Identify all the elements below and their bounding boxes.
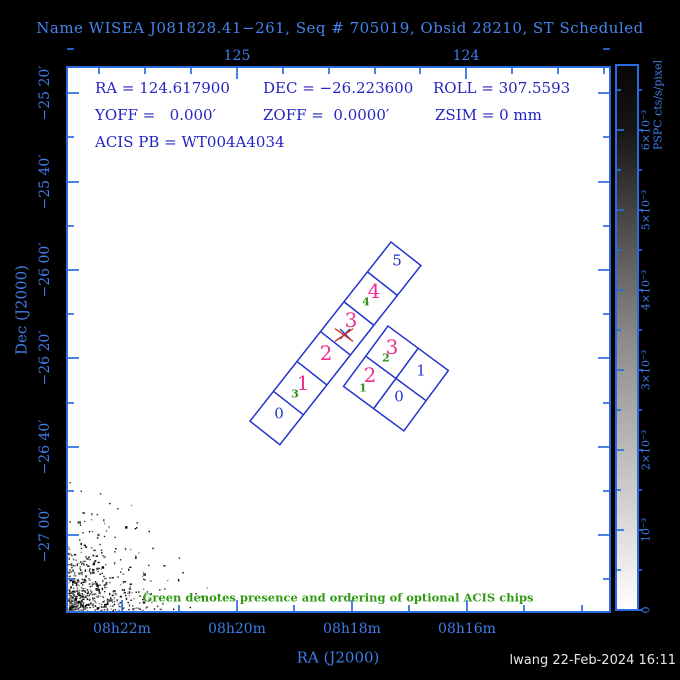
noise-pixel bbox=[109, 593, 110, 595]
noise-pixel bbox=[74, 601, 75, 602]
noise-pixel bbox=[68, 553, 69, 555]
noise-pixel bbox=[69, 598, 70, 599]
noise-pixel bbox=[72, 594, 73, 595]
noise-pixel bbox=[73, 599, 74, 600]
noise-pixel bbox=[101, 568, 102, 569]
noise-pixel bbox=[69, 597, 71, 598]
noise-pixel bbox=[80, 566, 81, 567]
noise-pixel bbox=[109, 526, 110, 528]
noise-pixel bbox=[78, 563, 79, 564]
noise-pixel bbox=[147, 591, 148, 592]
noise-pixel bbox=[92, 582, 93, 583]
noise-pixel bbox=[93, 607, 94, 608]
noise-pixel bbox=[111, 608, 112, 609]
colorbar bbox=[616, 65, 638, 610]
noise-pixel bbox=[75, 604, 76, 605]
noise-pixel bbox=[96, 568, 98, 570]
noise-pixel bbox=[110, 606, 111, 607]
noise-pixel bbox=[148, 565, 149, 566]
noise-pixel bbox=[83, 582, 84, 583]
noise-pixel bbox=[138, 591, 139, 592]
noise-pixel bbox=[123, 607, 124, 608]
noise-pixel bbox=[69, 557, 70, 558]
noise-pixel bbox=[84, 590, 85, 591]
noise-pixel bbox=[128, 609, 129, 610]
noise-pixel bbox=[77, 587, 78, 588]
noise-pixel bbox=[110, 597, 111, 599]
noise-pixel bbox=[82, 563, 84, 564]
noise-pixel bbox=[82, 596, 84, 597]
noise-pixel bbox=[201, 596, 202, 597]
noise-pixel bbox=[91, 591, 92, 592]
noise-pixel bbox=[173, 609, 174, 610]
noise-pixel bbox=[108, 599, 110, 600]
noise-pixel bbox=[102, 588, 103, 590]
noise-pixel bbox=[98, 562, 100, 563]
noise-pixel bbox=[71, 564, 72, 566]
noise-pixel bbox=[80, 607, 81, 608]
noise-pixel bbox=[83, 602, 84, 604]
noise-pixel bbox=[73, 610, 74, 611]
noise-pixel bbox=[107, 603, 108, 605]
noise-pixel bbox=[74, 554, 76, 555]
noise-pixel bbox=[159, 589, 160, 590]
noise-pixel bbox=[91, 585, 92, 586]
noise-pixel bbox=[117, 599, 118, 600]
noise-pixel bbox=[69, 593, 70, 594]
noise-pixel bbox=[74, 582, 75, 583]
noise-pixel bbox=[84, 545, 86, 546]
noise-pixel bbox=[115, 593, 117, 595]
noise-pixel bbox=[72, 592, 74, 593]
noise-pixel bbox=[135, 608, 136, 609]
noise-pixel bbox=[82, 584, 83, 585]
noise-pixel bbox=[98, 595, 99, 596]
noise-pixel bbox=[94, 593, 96, 594]
noise-pixel bbox=[110, 600, 111, 601]
noise-pixel bbox=[137, 522, 138, 523]
noise-pixel bbox=[79, 590, 80, 591]
noise-pixel bbox=[70, 572, 72, 573]
noise-pixel bbox=[106, 530, 107, 531]
noise-pixel bbox=[94, 583, 95, 584]
noise-pixel bbox=[106, 587, 107, 588]
noise-pixel bbox=[76, 591, 77, 592]
noise-pixel bbox=[77, 605, 78, 606]
noise-pixel bbox=[73, 588, 74, 589]
noise-pixel bbox=[84, 521, 85, 522]
noise-pixel bbox=[80, 603, 81, 605]
noise-pixel bbox=[154, 608, 155, 609]
noise-pixel bbox=[114, 562, 115, 564]
noise-pixel bbox=[115, 548, 116, 549]
noise-pixel bbox=[81, 543, 82, 545]
noise-pixel bbox=[85, 575, 86, 577]
noise-pixel bbox=[85, 591, 86, 592]
noise-pixel bbox=[74, 575, 76, 576]
noise-pixel bbox=[89, 568, 90, 569]
noise-pixel bbox=[102, 566, 104, 568]
noise-pixel bbox=[79, 594, 80, 596]
noise-pixel bbox=[69, 558, 70, 559]
noise-pixel bbox=[129, 588, 131, 589]
noise-pixel bbox=[91, 513, 92, 515]
noise-pixel bbox=[79, 568, 80, 569]
noise-pixel bbox=[82, 579, 83, 580]
noise-pixel bbox=[73, 604, 74, 605]
noise-pixel bbox=[103, 519, 104, 521]
noise-pixel bbox=[112, 605, 113, 606]
noise-pixel bbox=[114, 551, 115, 552]
noise-pixel bbox=[77, 564, 78, 566]
noise-pixel bbox=[160, 609, 162, 610]
noise-pixel bbox=[79, 581, 80, 582]
noise-pixel bbox=[75, 598, 76, 599]
noise-pixel bbox=[133, 598, 134, 599]
noise-pixel bbox=[71, 600, 72, 602]
noise-pixel bbox=[103, 556, 105, 558]
noise-pixel bbox=[101, 610, 102, 611]
noise-pixel bbox=[124, 581, 126, 582]
noise-pixel bbox=[94, 598, 95, 599]
noise-pixel bbox=[114, 604, 115, 605]
noise-pixel bbox=[98, 568, 99, 569]
noise-pixel bbox=[85, 546, 87, 547]
noise-pixel bbox=[104, 578, 106, 579]
noise-pixel bbox=[114, 601, 115, 602]
noise-pixel bbox=[88, 557, 89, 558]
noise-pixel bbox=[87, 599, 88, 600]
noise-pixel bbox=[102, 580, 103, 582]
noise-pixel bbox=[84, 607, 86, 608]
noise-pixel bbox=[80, 570, 81, 571]
noise-pixel bbox=[149, 531, 150, 532]
noise-pixel bbox=[87, 604, 89, 605]
noise-pixel bbox=[72, 583, 73, 585]
noise-pixel bbox=[73, 559, 74, 560]
noise-pixel bbox=[145, 608, 146, 609]
noise-pixel bbox=[144, 573, 146, 575]
noise-pixel bbox=[86, 564, 87, 565]
noise-pixel bbox=[105, 583, 107, 585]
noise-pixel bbox=[85, 556, 86, 558]
noise-pixel bbox=[84, 597, 85, 598]
noise-pixel bbox=[78, 522, 79, 523]
noise-pixel bbox=[90, 602, 91, 603]
noise-pixel bbox=[101, 550, 102, 551]
noise-pixel bbox=[182, 572, 183, 573]
noise-pixel bbox=[100, 493, 101, 494]
noise-pixel bbox=[195, 593, 196, 594]
noise-pixel bbox=[142, 599, 143, 600]
noise-pixel bbox=[128, 569, 129, 571]
noise-pixel bbox=[121, 568, 122, 569]
noise-pixel bbox=[128, 602, 129, 603]
noise-pixel bbox=[88, 591, 89, 592]
noise-pixel bbox=[91, 547, 92, 548]
noise-pixel bbox=[178, 579, 179, 581]
noise-pixel bbox=[118, 603, 120, 604]
noise-pixel bbox=[89, 599, 90, 600]
noise-pixel bbox=[75, 560, 77, 561]
noise-pixel bbox=[70, 593, 71, 594]
noise-pixel bbox=[129, 606, 130, 607]
noise-pixel bbox=[112, 577, 114, 578]
noise-pixel bbox=[99, 544, 100, 545]
noise-pixel bbox=[125, 548, 126, 550]
noise-pixel bbox=[97, 537, 98, 538]
noise-pixel bbox=[72, 591, 74, 592]
noise-pixel bbox=[81, 548, 82, 549]
noise-pixel bbox=[82, 572, 83, 573]
noise-pixel bbox=[109, 503, 110, 504]
noise-pixel bbox=[95, 560, 96, 561]
noise-pixel bbox=[112, 602, 113, 603]
noise-pixel bbox=[84, 588, 85, 589]
noise-pixel bbox=[130, 586, 131, 588]
noise-pixel bbox=[109, 582, 110, 583]
noise-pixel bbox=[89, 580, 91, 581]
noise-pixel bbox=[125, 595, 126, 596]
noise-pixel bbox=[143, 579, 144, 580]
noise-pixel bbox=[93, 550, 95, 551]
noise-pixel bbox=[81, 587, 82, 588]
noise-pixel bbox=[70, 607, 71, 608]
noise-pixel bbox=[132, 605, 133, 606]
noise-pixel bbox=[163, 565, 165, 566]
noise-pixel bbox=[129, 591, 130, 593]
noise-pixel bbox=[99, 585, 100, 586]
noise-pixel bbox=[142, 576, 143, 577]
noise-pixel bbox=[93, 563, 95, 565]
noise-pixel bbox=[96, 596, 97, 597]
noise-pixel bbox=[74, 606, 76, 607]
noise-pixel bbox=[80, 561, 81, 562]
noise-pixel bbox=[89, 583, 90, 584]
noise-pixel bbox=[105, 564, 106, 565]
noise-pixel bbox=[93, 603, 94, 604]
noise-pixel bbox=[151, 593, 152, 594]
noise-pixel bbox=[89, 571, 90, 572]
noise-pixel bbox=[78, 585, 80, 586]
noise-pixel bbox=[105, 585, 106, 586]
noise-pixel bbox=[81, 491, 82, 492]
noise-pixel bbox=[106, 606, 107, 607]
noise-pixel bbox=[132, 608, 134, 610]
noise-pixel bbox=[114, 597, 115, 599]
noise-pixel bbox=[80, 609, 81, 611]
noise-pixel bbox=[162, 603, 163, 604]
noise-pixel bbox=[77, 588, 78, 589]
noise-pixel bbox=[92, 597, 93, 599]
noise-pixel bbox=[129, 595, 130, 596]
noise-pixel bbox=[120, 584, 121, 585]
noise-pixel bbox=[118, 605, 119, 606]
noise-pixel bbox=[75, 609, 76, 610]
noise-pixel bbox=[125, 526, 127, 528]
noise-pixel bbox=[132, 592, 133, 593]
noise-pixel bbox=[143, 571, 144, 572]
noise-pixel bbox=[91, 519, 92, 520]
noise-pixel bbox=[144, 579, 145, 580]
noise-pixel bbox=[87, 590, 88, 591]
noise-pixel bbox=[97, 608, 99, 609]
noise-pixel bbox=[70, 595, 71, 596]
noise-pixel bbox=[96, 607, 97, 608]
noise-pixel bbox=[102, 596, 103, 597]
noise-pixel bbox=[74, 572, 75, 574]
noise-pixel bbox=[109, 577, 110, 578]
noise-pixel bbox=[120, 596, 121, 597]
noise-pixel bbox=[83, 609, 84, 610]
noise-pixel bbox=[76, 582, 77, 583]
noise-pixel bbox=[120, 572, 121, 573]
noise-pixel bbox=[135, 557, 136, 559]
noise-pixel bbox=[81, 600, 82, 602]
noise-pixel bbox=[87, 595, 88, 596]
noise-pixel bbox=[82, 532, 83, 533]
noise-pixel bbox=[135, 528, 136, 529]
noise-pixel bbox=[78, 601, 80, 603]
noise-pixel bbox=[101, 607, 103, 608]
noise-pixel bbox=[117, 576, 118, 577]
obsvis-fov-screen: Name WISEA J081828.41−261, Seq # 705019,… bbox=[0, 0, 680, 680]
noise-pixel bbox=[70, 521, 71, 522]
noise-pixel bbox=[117, 508, 118, 509]
noise-pixel bbox=[82, 605, 83, 606]
noise-pixel bbox=[74, 565, 75, 566]
noise-pixel bbox=[69, 580, 71, 581]
noise-pixel bbox=[71, 567, 72, 568]
noise-pixel bbox=[89, 593, 90, 594]
noise-pixel bbox=[139, 602, 140, 603]
noise-pixel bbox=[103, 601, 104, 602]
noise-pixel bbox=[69, 595, 70, 596]
noise-pixel bbox=[99, 592, 101, 594]
noise-pixel bbox=[115, 609, 116, 610]
noise-pixel bbox=[68, 571, 69, 573]
noise-pixel bbox=[87, 610, 88, 611]
noise-pixel bbox=[89, 531, 90, 532]
noise-pixel bbox=[82, 590, 84, 591]
noise-pixel bbox=[68, 564, 70, 565]
noise-pixel bbox=[129, 604, 130, 605]
noise-pixel bbox=[92, 584, 93, 585]
noise-pixel bbox=[86, 607, 87, 608]
noise-pixel bbox=[98, 571, 99, 572]
noise-pixel bbox=[81, 582, 82, 583]
noise-pixel bbox=[130, 584, 132, 585]
noise-pixel bbox=[85, 605, 86, 607]
noise-pixel bbox=[139, 596, 140, 597]
noise-pixel bbox=[79, 572, 80, 573]
noise-pixel bbox=[142, 610, 144, 611]
noise-pixel bbox=[100, 574, 101, 575]
noise-pixel bbox=[69, 605, 70, 606]
noise-pixel bbox=[82, 597, 84, 598]
noise-pixel bbox=[87, 593, 88, 594]
noise-pixel bbox=[70, 482, 71, 483]
noise-pixel bbox=[95, 581, 96, 582]
noise-pixel bbox=[92, 599, 93, 600]
noise-pixel bbox=[127, 593, 128, 594]
noise-pixel bbox=[72, 603, 73, 604]
noise-pixel bbox=[94, 609, 95, 611]
noise-pixel bbox=[120, 602, 121, 603]
noise-pixel bbox=[84, 561, 85, 562]
noise-pixel bbox=[145, 593, 146, 594]
noise-pixel bbox=[80, 552, 81, 553]
noise-pixel bbox=[131, 600, 132, 601]
noise-pixel bbox=[94, 601, 95, 602]
noise-pixel bbox=[69, 590, 70, 591]
noise-pixel bbox=[104, 609, 105, 610]
noise-pixel bbox=[99, 603, 100, 604]
noise-pixel bbox=[114, 537, 115, 538]
noise-pixel bbox=[190, 607, 191, 608]
noise-pixel bbox=[86, 558, 88, 559]
noise-pixel bbox=[113, 610, 114, 612]
noise-pixel bbox=[69, 591, 70, 592]
noise-pixel bbox=[89, 570, 90, 571]
noise-pixel bbox=[69, 602, 71, 603]
noise-pixel bbox=[126, 598, 127, 600]
noise-pixel bbox=[120, 559, 121, 560]
noise-pixel bbox=[118, 610, 120, 611]
noise-pixel bbox=[92, 571, 94, 573]
noise-pixel bbox=[70, 587, 71, 588]
sky-plot-canvas bbox=[0, 0, 680, 680]
noise-pixel bbox=[122, 573, 124, 574]
noise-pixel bbox=[81, 573, 83, 575]
noise-pixel bbox=[119, 606, 120, 607]
noise-pixel bbox=[92, 594, 93, 595]
noise-pixel bbox=[88, 578, 89, 579]
noise-pixel bbox=[122, 589, 123, 590]
noise-pixel bbox=[96, 555, 98, 556]
noise-pixel bbox=[114, 591, 116, 592]
noise-pixel bbox=[136, 592, 137, 593]
noise-pixel bbox=[97, 534, 99, 536]
noise-pixel bbox=[93, 569, 94, 570]
noise-pixel bbox=[83, 561, 84, 562]
noise-pixel bbox=[73, 565, 74, 566]
noise-pixel bbox=[89, 595, 90, 596]
noise-pixel bbox=[124, 592, 126, 593]
noise-pixel bbox=[71, 609, 72, 610]
noise-pixel bbox=[95, 605, 96, 606]
noise-pixel bbox=[90, 586, 91, 587]
noise-pixel bbox=[77, 602, 78, 603]
noise-pixel bbox=[96, 589, 98, 590]
noise-pixel bbox=[136, 527, 137, 528]
noise-pixel bbox=[100, 596, 101, 597]
noise-pixel bbox=[138, 608, 139, 609]
noise-pixel bbox=[76, 601, 77, 602]
noise-pixel bbox=[69, 549, 70, 550]
noise-pixel bbox=[82, 512, 84, 513]
noise-pixel bbox=[104, 591, 105, 592]
noise-pixel bbox=[102, 555, 103, 556]
noise-pixel bbox=[77, 594, 78, 595]
noise-pixel bbox=[80, 595, 81, 596]
noise-pixel bbox=[93, 555, 94, 556]
noise-pixel bbox=[129, 567, 131, 568]
noise-pixel bbox=[69, 576, 70, 577]
noise-pixel bbox=[164, 588, 165, 589]
noise-pixel bbox=[150, 580, 152, 581]
noise-pixel bbox=[68, 600, 70, 601]
